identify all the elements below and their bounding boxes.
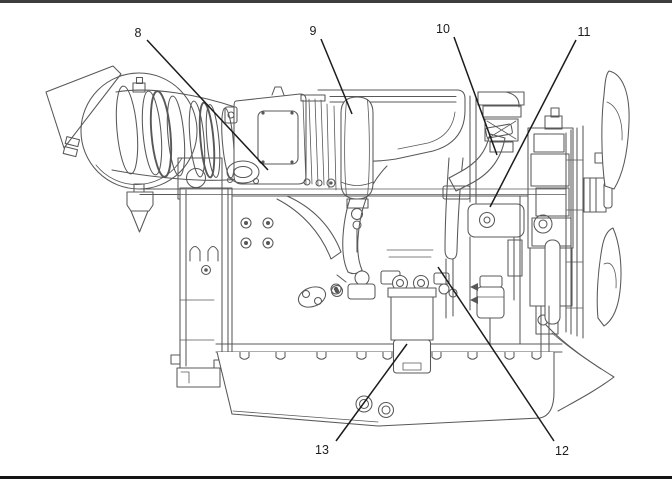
engine-illustration: 8910111213 bbox=[0, 0, 672, 482]
engine-mount-bracket bbox=[546, 325, 614, 411]
callout-label-13: 13 bbox=[315, 443, 329, 457]
air-inlet-housing bbox=[225, 87, 306, 184]
manual-figure-page: 8910111213 bbox=[0, 0, 672, 482]
oil-pan bbox=[216, 344, 562, 426]
callout-leader-9 bbox=[321, 39, 352, 114]
page-bottom-rule bbox=[0, 476, 672, 479]
callout-label-8: 8 bbox=[135, 26, 142, 40]
air-cleaner-bracket-plate bbox=[46, 66, 121, 148]
callout-label-10: 10 bbox=[436, 22, 450, 36]
secondary-filter bbox=[470, 276, 504, 344]
callout-label-9: 9 bbox=[310, 24, 317, 38]
dust-ejector bbox=[127, 184, 153, 232]
callout-label-12: 12 bbox=[555, 444, 569, 458]
water-outlet-elbow bbox=[443, 124, 513, 199]
page-top-rule bbox=[0, 0, 672, 3]
breather-canister bbox=[341, 97, 373, 252]
callout-label-11: 11 bbox=[578, 25, 591, 39]
